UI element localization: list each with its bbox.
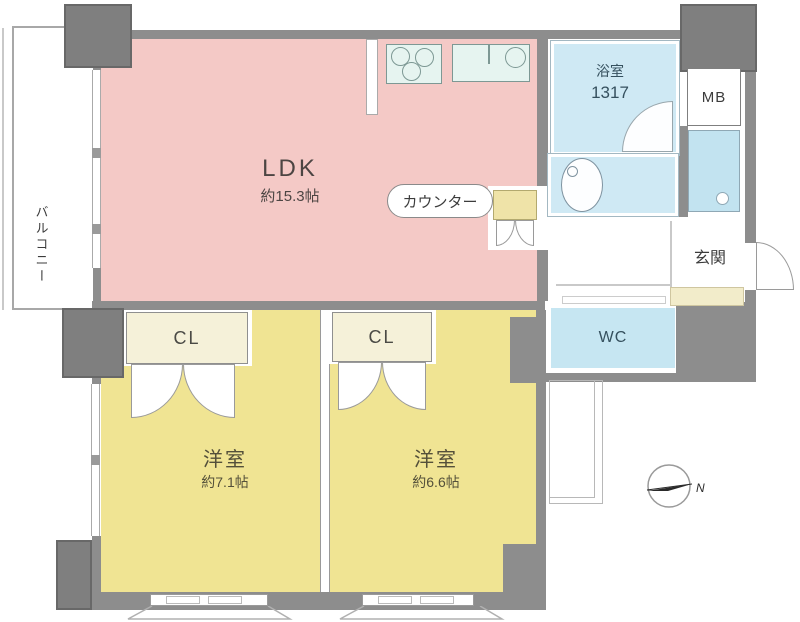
ldk-label: LDK (220, 155, 360, 183)
meter-box: MB (687, 68, 741, 126)
counter-label-pill: カウンター (387, 184, 493, 218)
washing-machine-pan (688, 130, 740, 212)
wc-door-track (562, 296, 666, 304)
kitchen-faucet-icon (488, 44, 490, 64)
hall-step-line (556, 284, 670, 286)
wc-label: WC (599, 329, 628, 347)
ldk-window-tick (92, 148, 101, 158)
floor-plan: バルコニー LDK 約 (0, 0, 800, 622)
wall-right-upper (745, 72, 756, 243)
entrance-label: 玄関 (675, 244, 745, 268)
ldk-window-tick (92, 224, 101, 234)
wall-block-right (676, 302, 756, 382)
wall-top (95, 30, 690, 39)
counter-label: カウンター (402, 191, 477, 212)
meter-box-label: MB (702, 89, 727, 106)
room-wc: WC (551, 306, 675, 368)
bedroom2-label: 洋室 (366, 444, 506, 470)
kitchen-wall-stub (366, 39, 378, 115)
kitchen-sink-bowl-icon (505, 47, 526, 68)
bedroom1-size-label: 約7.1帖 (150, 472, 300, 492)
balcony (12, 26, 95, 310)
bedroom1-label: 洋室 (155, 444, 295, 470)
entrance-step (670, 287, 744, 306)
closet2-label: CL (368, 327, 395, 348)
pillar-bottom-bedroom2 (503, 544, 545, 610)
wall-left-ldk-bottom (93, 268, 101, 301)
bedroom2-size-label: 約6.6帖 (361, 472, 511, 492)
washbasin-icon (561, 158, 603, 212)
wall-ldk-hall-lower (537, 248, 548, 301)
bedroom1-window-sash (166, 596, 200, 604)
hall-entrance-divider (670, 221, 672, 288)
ldk-size-label: 約15.3帖 (210, 185, 370, 205)
wall-left-bed-bottom (92, 536, 101, 596)
closet1: CL (126, 312, 248, 364)
closet1-label: CL (173, 328, 200, 349)
bedroom1-window-sash (208, 596, 242, 604)
bedroom2-window-sash (378, 596, 412, 604)
front-door-swing (756, 242, 794, 290)
bathroom-size-label: 1317 (560, 82, 660, 104)
pillar-top-left (64, 4, 132, 68)
stove-burner-icon (402, 62, 421, 81)
closet2: CL (332, 312, 432, 362)
wall-ldk-hall-upper (537, 39, 548, 189)
bedroom2-bay-outline (330, 606, 510, 621)
wall-bedroom2-wc-block (510, 317, 546, 383)
pillar-top-right (680, 4, 757, 72)
bathroom-label: 浴室 (560, 62, 660, 80)
lower-service-outline-inner (549, 380, 595, 498)
counter-top (493, 190, 537, 220)
pillar-bottom-left (56, 540, 92, 610)
bedroom1-window-tick (91, 455, 100, 465)
balcony-outer-line (2, 28, 4, 310)
ldk-balcony-window (92, 70, 101, 268)
wall-washroom-right (678, 126, 688, 217)
washbasin-faucet-icon (567, 166, 578, 177)
drain-icon (716, 192, 729, 205)
bedroom2-window-sash (420, 596, 454, 604)
bedroom1-bay-outline (118, 606, 298, 621)
pillar-mid-left (62, 308, 124, 378)
balcony-label: バルコニー (30, 185, 52, 305)
wall-middle (92, 301, 545, 310)
compass-north-label: N (696, 481, 705, 495)
compass-north-icon: N (638, 458, 714, 512)
balcony-label-text: バルコニー (32, 205, 51, 285)
